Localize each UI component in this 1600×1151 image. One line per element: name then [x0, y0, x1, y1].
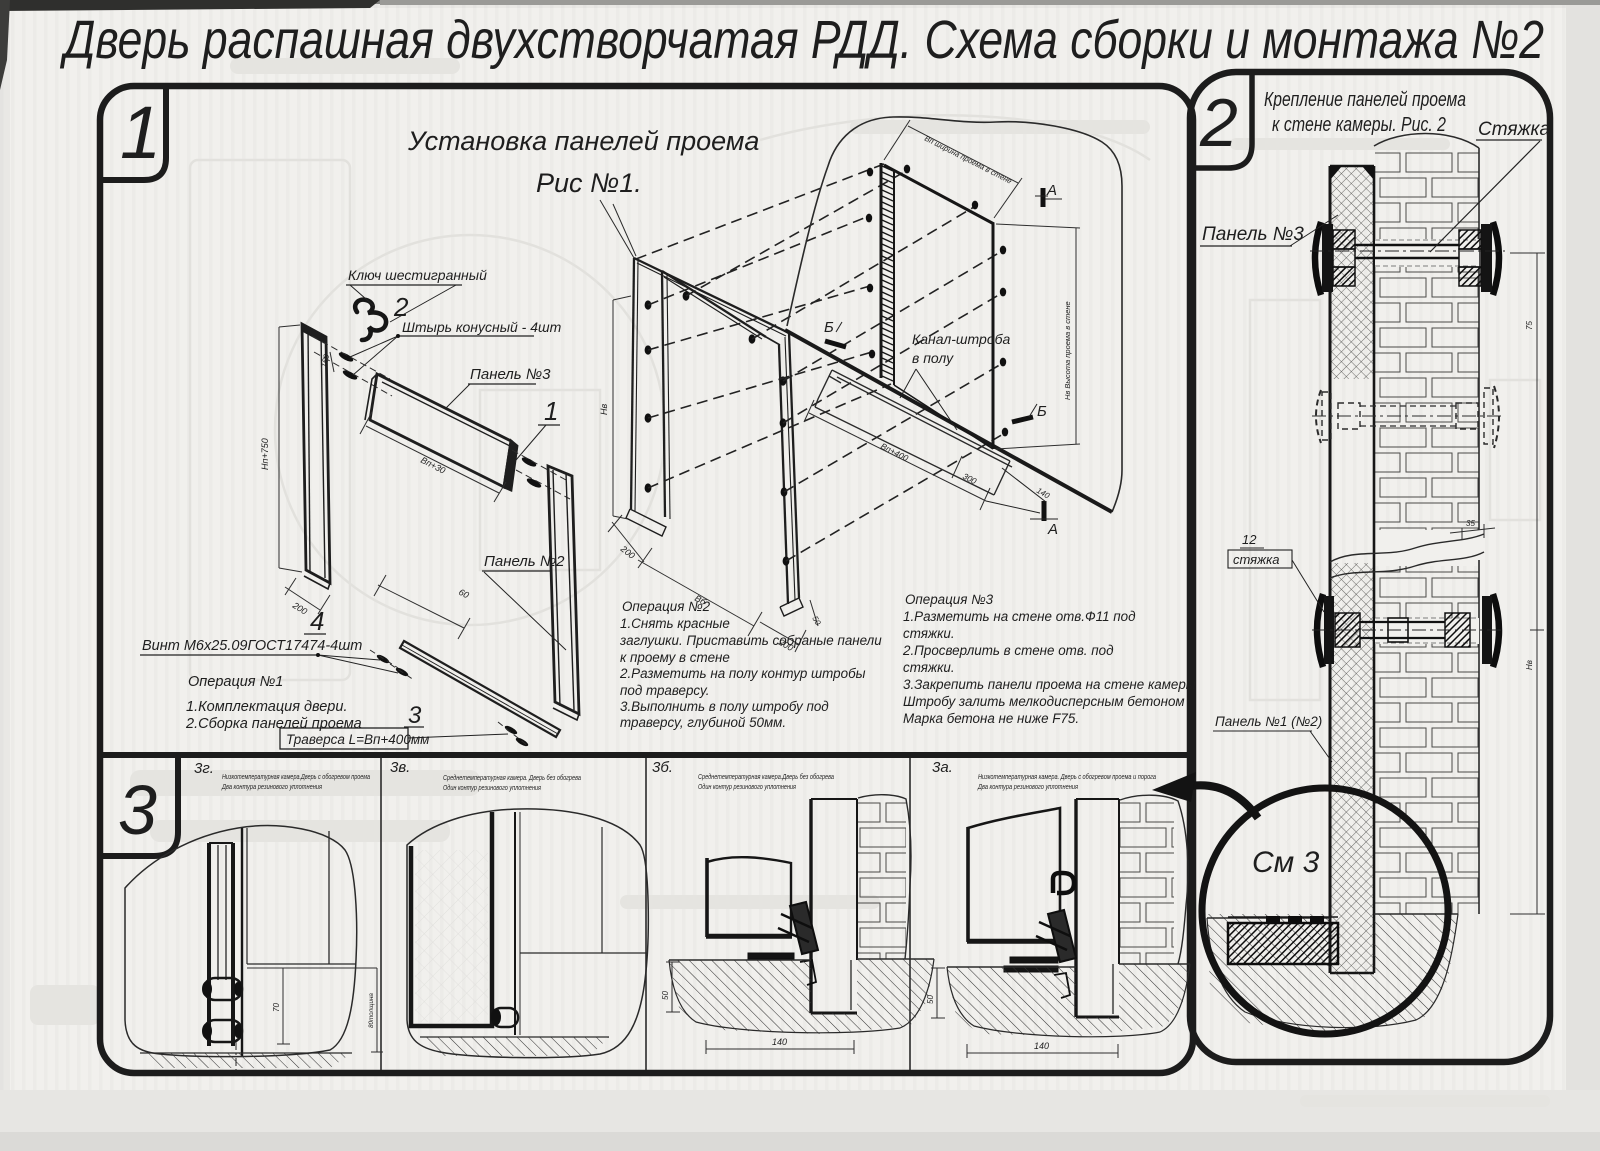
svg-text:Один контур резинового уплотне: Один контур резинового уплотнения — [443, 784, 541, 792]
svg-text:2: 2 — [1199, 85, 1238, 161]
svg-text:3: 3 — [408, 702, 422, 729]
svg-text:35: 35 — [1466, 519, 1475, 528]
svg-text:Операция №3: Операция №3 — [905, 592, 994, 607]
svg-text:Крепление панелей проема: Крепление панелей проема — [1264, 89, 1466, 111]
svg-text:стяжка: стяжка — [1233, 552, 1279, 567]
svg-text:3.Выполнить в полу штробу под: 3.Выполнить в полу штробу под — [620, 699, 829, 714]
svg-text:Ключ шестигранный: Ключ шестигранный — [348, 267, 487, 283]
svg-text:1.Разметить на стене отв.Ф11 п: 1.Разметить на стене отв.Ф11 под — [903, 609, 1136, 624]
svg-text:50: 50 — [926, 995, 935, 1004]
svg-text:Дверь распашная двухстворчатая: Дверь распашная двухстворчатая РДД. Схем… — [60, 10, 1544, 70]
svg-text:Установка панелей проема: Установка панелей проема — [407, 126, 759, 156]
svg-text:75: 75 — [1525, 321, 1534, 330]
svg-text:Два контура резинового уплотне: Два контура резинового уплотнения — [221, 784, 322, 791]
svg-text:1.Снять красные: 1.Снять красные — [620, 616, 730, 631]
svg-text:Операция №2: Операция №2 — [622, 599, 711, 614]
svg-text:Среднетемпературная камера.Две: Среднетемпературная камера.Дверь без обо… — [698, 773, 834, 781]
svg-text:заглушки. Приставить собраные: заглушки. Приставить собраные панели — [619, 633, 882, 648]
svg-text:Низкотемпературная камера. Две: Низкотемпературная камера. Дверь с обогр… — [978, 773, 1156, 781]
svg-text:траверсу, глубиной 50мм.: траверсу, глубиной 50мм. — [620, 715, 786, 730]
svg-text:под траверсу.: под траверсу. — [620, 683, 710, 698]
svg-text:3г.: 3г. — [194, 760, 214, 777]
svg-text:См 3: См 3 — [1252, 846, 1320, 879]
svg-text:стяжки.: стяжки. — [903, 660, 955, 675]
svg-text:3: 3 — [118, 771, 157, 849]
svg-text:Канал-штроба: Канал-штроба — [912, 331, 1011, 347]
svg-text:3.Закрепить панели проема на с: 3.Закрепить панели проема на стене камер… — [903, 677, 1196, 692]
svg-text:70: 70 — [272, 1003, 281, 1012]
svg-text:Винт М6х25.09ГОСТ17474-4шт: Винт М6х25.09ГОСТ17474-4шт — [142, 638, 362, 654]
svg-text:Панель №3: Панель №3 — [470, 366, 551, 383]
svg-text:140: 140 — [772, 1037, 787, 1047]
svg-text:Среднетемпературная камера. Дв: Среднетемпературная камера. Дверь без об… — [443, 774, 581, 782]
svg-text:Панель №1 (№2): Панель №1 (№2) — [1215, 714, 1322, 729]
svg-text:2.Просверлить в стене отв. по: 2.Просверлить в стене отв. под — [902, 643, 1113, 658]
svg-text:12: 12 — [1242, 532, 1257, 547]
svg-text:3а.: 3а. — [932, 759, 953, 776]
svg-text:1.Комплектация двери.: 1.Комплектация двери. — [186, 699, 347, 715]
svg-text:1: 1 — [544, 396, 558, 426]
svg-text:А: А — [1046, 182, 1057, 199]
svg-text:Рис №1.: Рис №1. — [536, 168, 642, 198]
svg-text:Штырь конусный - 4шт: Штырь конусный - 4шт — [402, 319, 562, 335]
svg-text:Операция №1: Операция №1 — [188, 674, 283, 690]
svg-text:Панель №2: Панель №2 — [484, 553, 565, 570]
svg-text:к проему в стене: к проему в стене — [620, 650, 730, 665]
svg-text:Б: Б — [1037, 403, 1047, 420]
svg-text:4: 4 — [310, 606, 324, 636]
svg-text:80толщина: 80толщина — [368, 993, 375, 1028]
svg-text:Нп+750: Нп+750 — [260, 438, 270, 470]
svg-text:Один контур резинового уплотне: Один контур резинового уплотнения — [698, 783, 796, 791]
svg-text:2: 2 — [393, 292, 409, 322]
svg-text:140: 140 — [1034, 1041, 1049, 1051]
svg-text:3б.: 3б. — [652, 759, 673, 776]
svg-text:Два контура резинового уплотне: Два контура резинового уплотнения — [977, 784, 1078, 791]
svg-text:Штробу залить мелкодисперсным: Штробу залить мелкодисперсным бетоном — [903, 694, 1185, 709]
svg-text:50: 50 — [661, 991, 670, 1000]
svg-text:2.Разметить на полу контур штр: 2.Разметить на полу контур штробы — [619, 666, 866, 681]
svg-text:Нв: Нв — [599, 404, 609, 415]
svg-text:стяжки.: стяжки. — [903, 626, 955, 641]
svg-text:Панель №3: Панель №3 — [1202, 224, 1304, 245]
svg-text:А: А — [1047, 521, 1058, 538]
svg-text:3в.: 3в. — [390, 759, 410, 776]
svg-text:2.Сборка панелей проема: 2.Сборка панелей проема — [185, 716, 362, 732]
svg-text:1: 1 — [120, 91, 161, 174]
svg-text:Траверса L=Bп+400мм: Траверса L=Bп+400мм — [286, 732, 429, 747]
svg-text:Марка бетона не ниже F75.: Марка бетона не ниже F75. — [903, 711, 1079, 726]
svg-text:в полу: в полу — [912, 350, 954, 366]
svg-text:Б: Б — [824, 319, 834, 336]
svg-text:Стяжка: Стяжка — [1478, 119, 1550, 140]
svg-text:Нв: Нв — [1525, 660, 1534, 670]
svg-text:к стене камеры. Рис. 2: к стене камеры. Рис. 2 — [1272, 114, 1446, 136]
svg-text:Нв Высота проема в стене: Нв Высота проема в стене — [1063, 301, 1072, 400]
svg-text:Низкотемпературная камера.Двер: Низкотемпературная камера.Дверь с обогре… — [222, 773, 370, 781]
